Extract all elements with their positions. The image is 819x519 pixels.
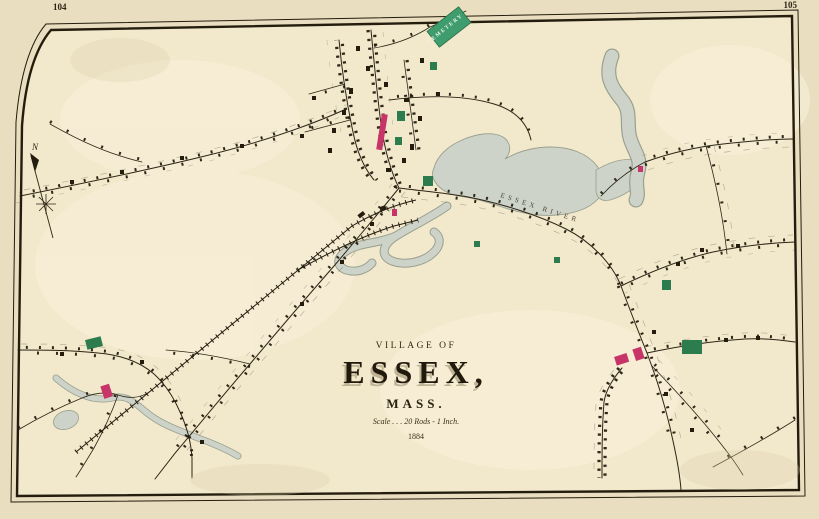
building-town-hall <box>423 176 433 186</box>
page-number-right: 105 <box>784 0 798 10</box>
building-green-north <box>430 62 437 70</box>
map-subtitle: MASS. <box>386 396 445 411</box>
building-pink-northeast <box>638 166 643 172</box>
year-label: 1884 <box>408 432 424 441</box>
compass-star-icon <box>36 194 56 214</box>
building-church-1 <box>397 111 405 121</box>
building-depot <box>392 209 397 216</box>
essex-village-map: ESSEX RIVER 104 105 CEMETERY N VILLAGE O… <box>0 0 819 519</box>
building-church-2 <box>395 137 402 145</box>
building-green-small-1 <box>474 241 480 247</box>
title-kicker: VILLAGE OF <box>376 341 457 351</box>
building-green-small-2 <box>554 257 560 263</box>
atlas-map-sheet: ESSEX RIVER 104 105 CEMETERY N VILLAGE O… <box>0 0 819 519</box>
page-number-left: 104 <box>53 2 67 12</box>
building-green-east-2 <box>682 340 702 354</box>
map-title: ESSEX, <box>343 354 488 390</box>
scale-label: Scale . . . 20 Rods - 1 Inch. <box>373 417 459 426</box>
compass-north-label: N <box>31 142 39 152</box>
building-green-east-1 <box>662 280 671 290</box>
